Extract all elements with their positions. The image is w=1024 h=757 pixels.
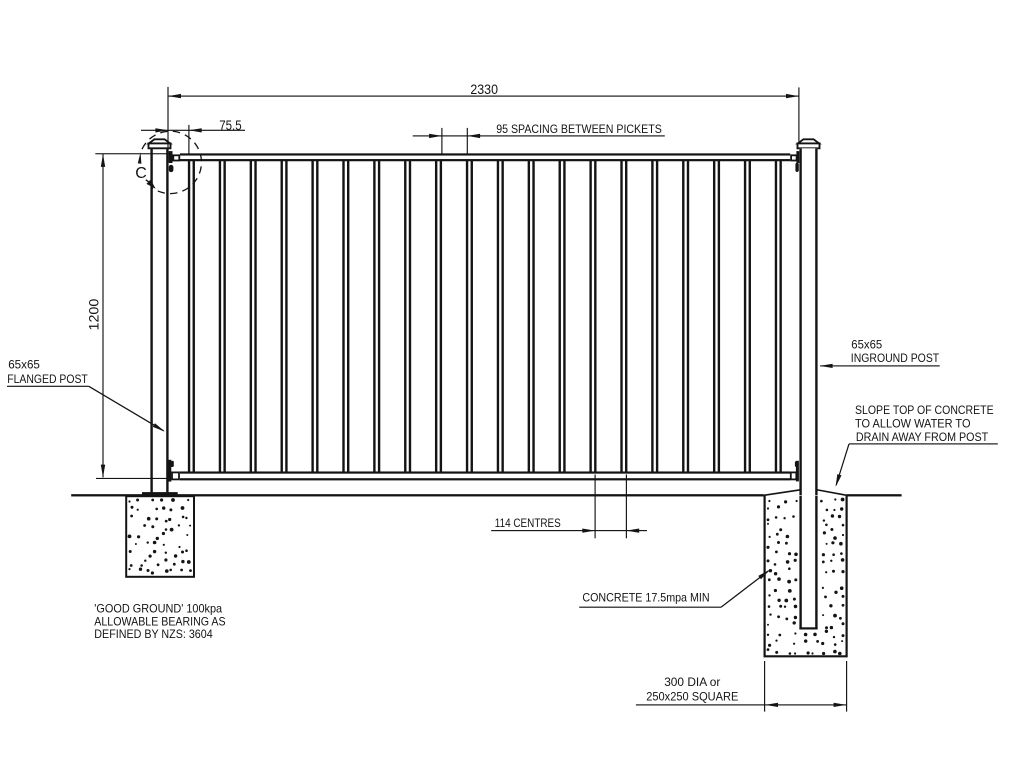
svg-text:65x65: 65x65 [8,357,40,371]
svg-text:1200: 1200 [86,298,102,330]
svg-text:75.5: 75.5 [219,117,242,133]
svg-text:C: C [135,165,147,182]
svg-text:DRAIN AWAY FROM POST: DRAIN AWAY FROM POST [856,430,989,444]
svg-text:'GOOD GROUND' 100kpa: 'GOOD GROUND' 100kpa [94,601,222,615]
svg-text:FLANGED POST: FLANGED POST [7,372,88,386]
svg-text:114 CENTRES: 114 CENTRES [495,516,561,530]
svg-text:300 DIA or: 300 DIA or [664,675,720,689]
svg-text:CONCRETE 17.5mpa MIN: CONCRETE 17.5mpa MIN [582,591,709,605]
svg-text:INGROUND POST: INGROUND POST [851,351,940,365]
svg-text:SLOPE TOP OF CONCRETE: SLOPE TOP OF CONCRETE [855,403,994,417]
svg-text:250x250 SQUARE: 250x250 SQUARE [646,690,738,704]
svg-text:ALLOWABLE BEARING AS: ALLOWABLE BEARING AS [94,614,225,628]
svg-text:2330: 2330 [470,81,498,97]
svg-text:95 SPACING BETWEEN PICKETS: 95 SPACING BETWEEN PICKETS [496,122,662,136]
svg-text:TO ALLOW WATER TO: TO ALLOW WATER TO [855,417,971,431]
svg-text:DEFINED BY NZS: 3604: DEFINED BY NZS: 3604 [94,627,213,641]
svg-text:65x65: 65x65 [851,337,882,351]
